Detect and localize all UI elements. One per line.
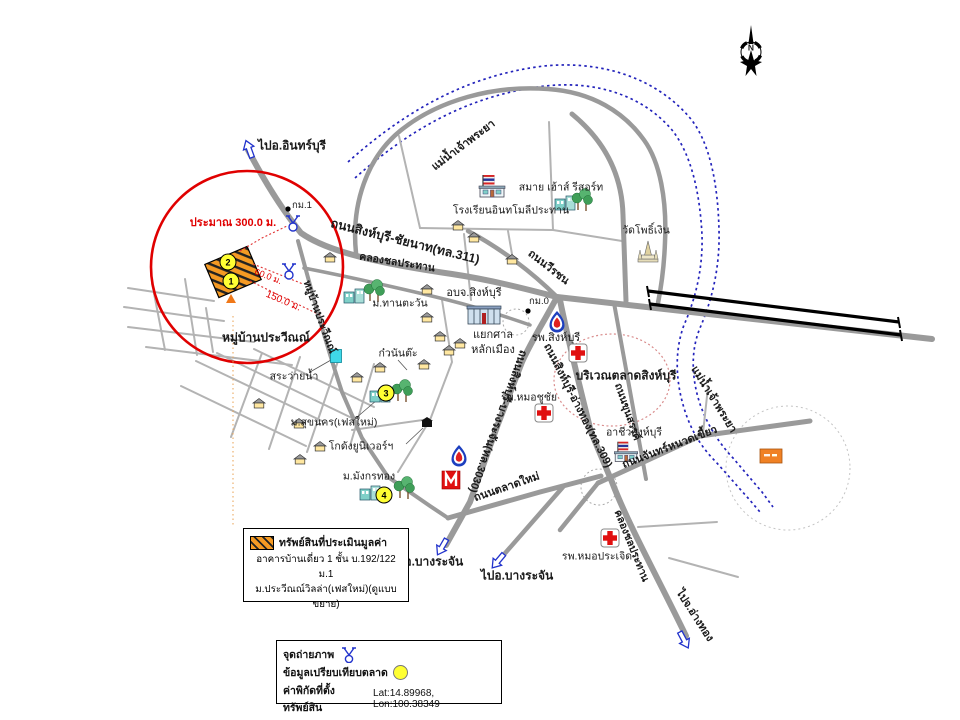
chao-phraya-river <box>348 65 773 512</box>
village-area-label: หมู่บ้านประวีณณ์ <box>222 332 310 345</box>
orange-building-icon <box>760 449 782 463</box>
comparison-point-4: 4 <box>376 487 393 504</box>
suknakhon-label: ม.สุขนคร(เฟสใหม่) <box>291 417 378 428</box>
yaek-label-2: หลักเมือง <box>471 345 515 357</box>
prajerd-label: รพ.หมอประเจิด <box>562 551 632 562</box>
property-hatch-swatch <box>250 536 274 550</box>
photo-point-legend-icon <box>339 647 359 663</box>
map-graphics <box>0 0 960 720</box>
pool-label: สระว่ายน้ำ <box>270 371 319 382</box>
legend-coordinates-label: ค่าพิกัดที่ตั้งทรัพย์สิน <box>283 682 368 716</box>
legend-property-line1: อาคารบ้านเดี่ยว 1 ชั้น บ.192/122 ม.1 <box>250 552 402 582</box>
legend-market-comparison-label: ข้อมูลเปรียบเทียบตลาด <box>283 664 388 681</box>
clinic-cross-icon-2 <box>601 529 619 547</box>
direction-label-inburi: ไปอ.อินทร์บุรี <box>258 140 326 153</box>
comparison-point-1: 1 <box>223 273 240 290</box>
singburi-hospital-label: รพ.สิงห์บุรี <box>532 333 580 345</box>
school-label: โรงเรียนอินทโมลีประทาน <box>453 205 569 216</box>
mangkorn-label: ม.มังกรทอง <box>343 471 395 482</box>
legend-property-box: ทรัพย์สินที่ประเมินมูลค่า อาคารบ้านเดี่ย… <box>243 528 409 602</box>
km0-label: กม.0 <box>529 297 549 307</box>
property-pointer <box>226 294 236 303</box>
market-comparison-legend-icon <box>393 665 408 680</box>
km1-dot <box>285 206 290 211</box>
legend-coordinates-value: Lat:14.89968, Lon:100.38349 <box>373 688 495 710</box>
location-map: ไปอ.อินทร์บุรี กม.1 ถนนสิงห์บุรี-ชัยนาท(… <box>0 0 960 720</box>
resort-label: สมาย เฮ้าส์ รีสอร์ท <box>519 182 603 193</box>
archeewa-label: อาชีวสิงห์บุรี <box>606 427 662 438</box>
store-logo-icon <box>442 471 460 489</box>
government-building-icon <box>467 306 501 324</box>
gas-station-icon-2 <box>452 445 467 467</box>
km0-dot <box>525 308 530 313</box>
legend-photo-point-label: จุดถ่ายภาพ <box>283 646 334 663</box>
arrow-to-inburi <box>241 139 257 160</box>
temple-label: วัดโพธิ์เงิน <box>622 225 670 236</box>
warehouse-label: โกดังยูนิเวอร์ฯ <box>329 441 394 452</box>
market-area-label: บริเวณตลาดสิงห์บุรี <box>576 370 677 383</box>
legend-property-title: ทรัพย์สินที่ประเมินมูลค่า <box>279 534 387 551</box>
km1-label: กม.1 <box>292 201 312 211</box>
distance-label-300m: ประมาณ 300.0 ม. <box>190 218 276 230</box>
legend-property-line2: ม.ประวีณณ์วิลล่า(เฟสใหม่)(ดูแบบขยาย) <box>250 582 402 612</box>
direction-label-bangrajan-2: ไปอ.บางระจัน <box>481 570 554 583</box>
school-icon <box>479 175 505 197</box>
legend-symbols-box: จุดถ่ายภาพ ข้อมูลเปรียบเทียบตลาด ค่าพิกั… <box>276 640 502 704</box>
comparison-point-2: 2 <box>220 254 237 271</box>
kuaynunta-label: ก๋วนันต๊ะ <box>378 348 417 359</box>
compass-north-label: N <box>748 44 754 53</box>
tantawan-label: ม.ทานตะวัน <box>372 298 427 309</box>
comparison-point-3: 3 <box>378 385 395 402</box>
clinic-cross-icon <box>535 404 553 422</box>
temple-icon <box>638 241 658 262</box>
obj-label: อบจ.สิงห์บุรี <box>446 288 501 300</box>
yaek-label-1: แยกศาล <box>473 330 513 342</box>
hospital-cross-icon <box>569 344 587 362</box>
